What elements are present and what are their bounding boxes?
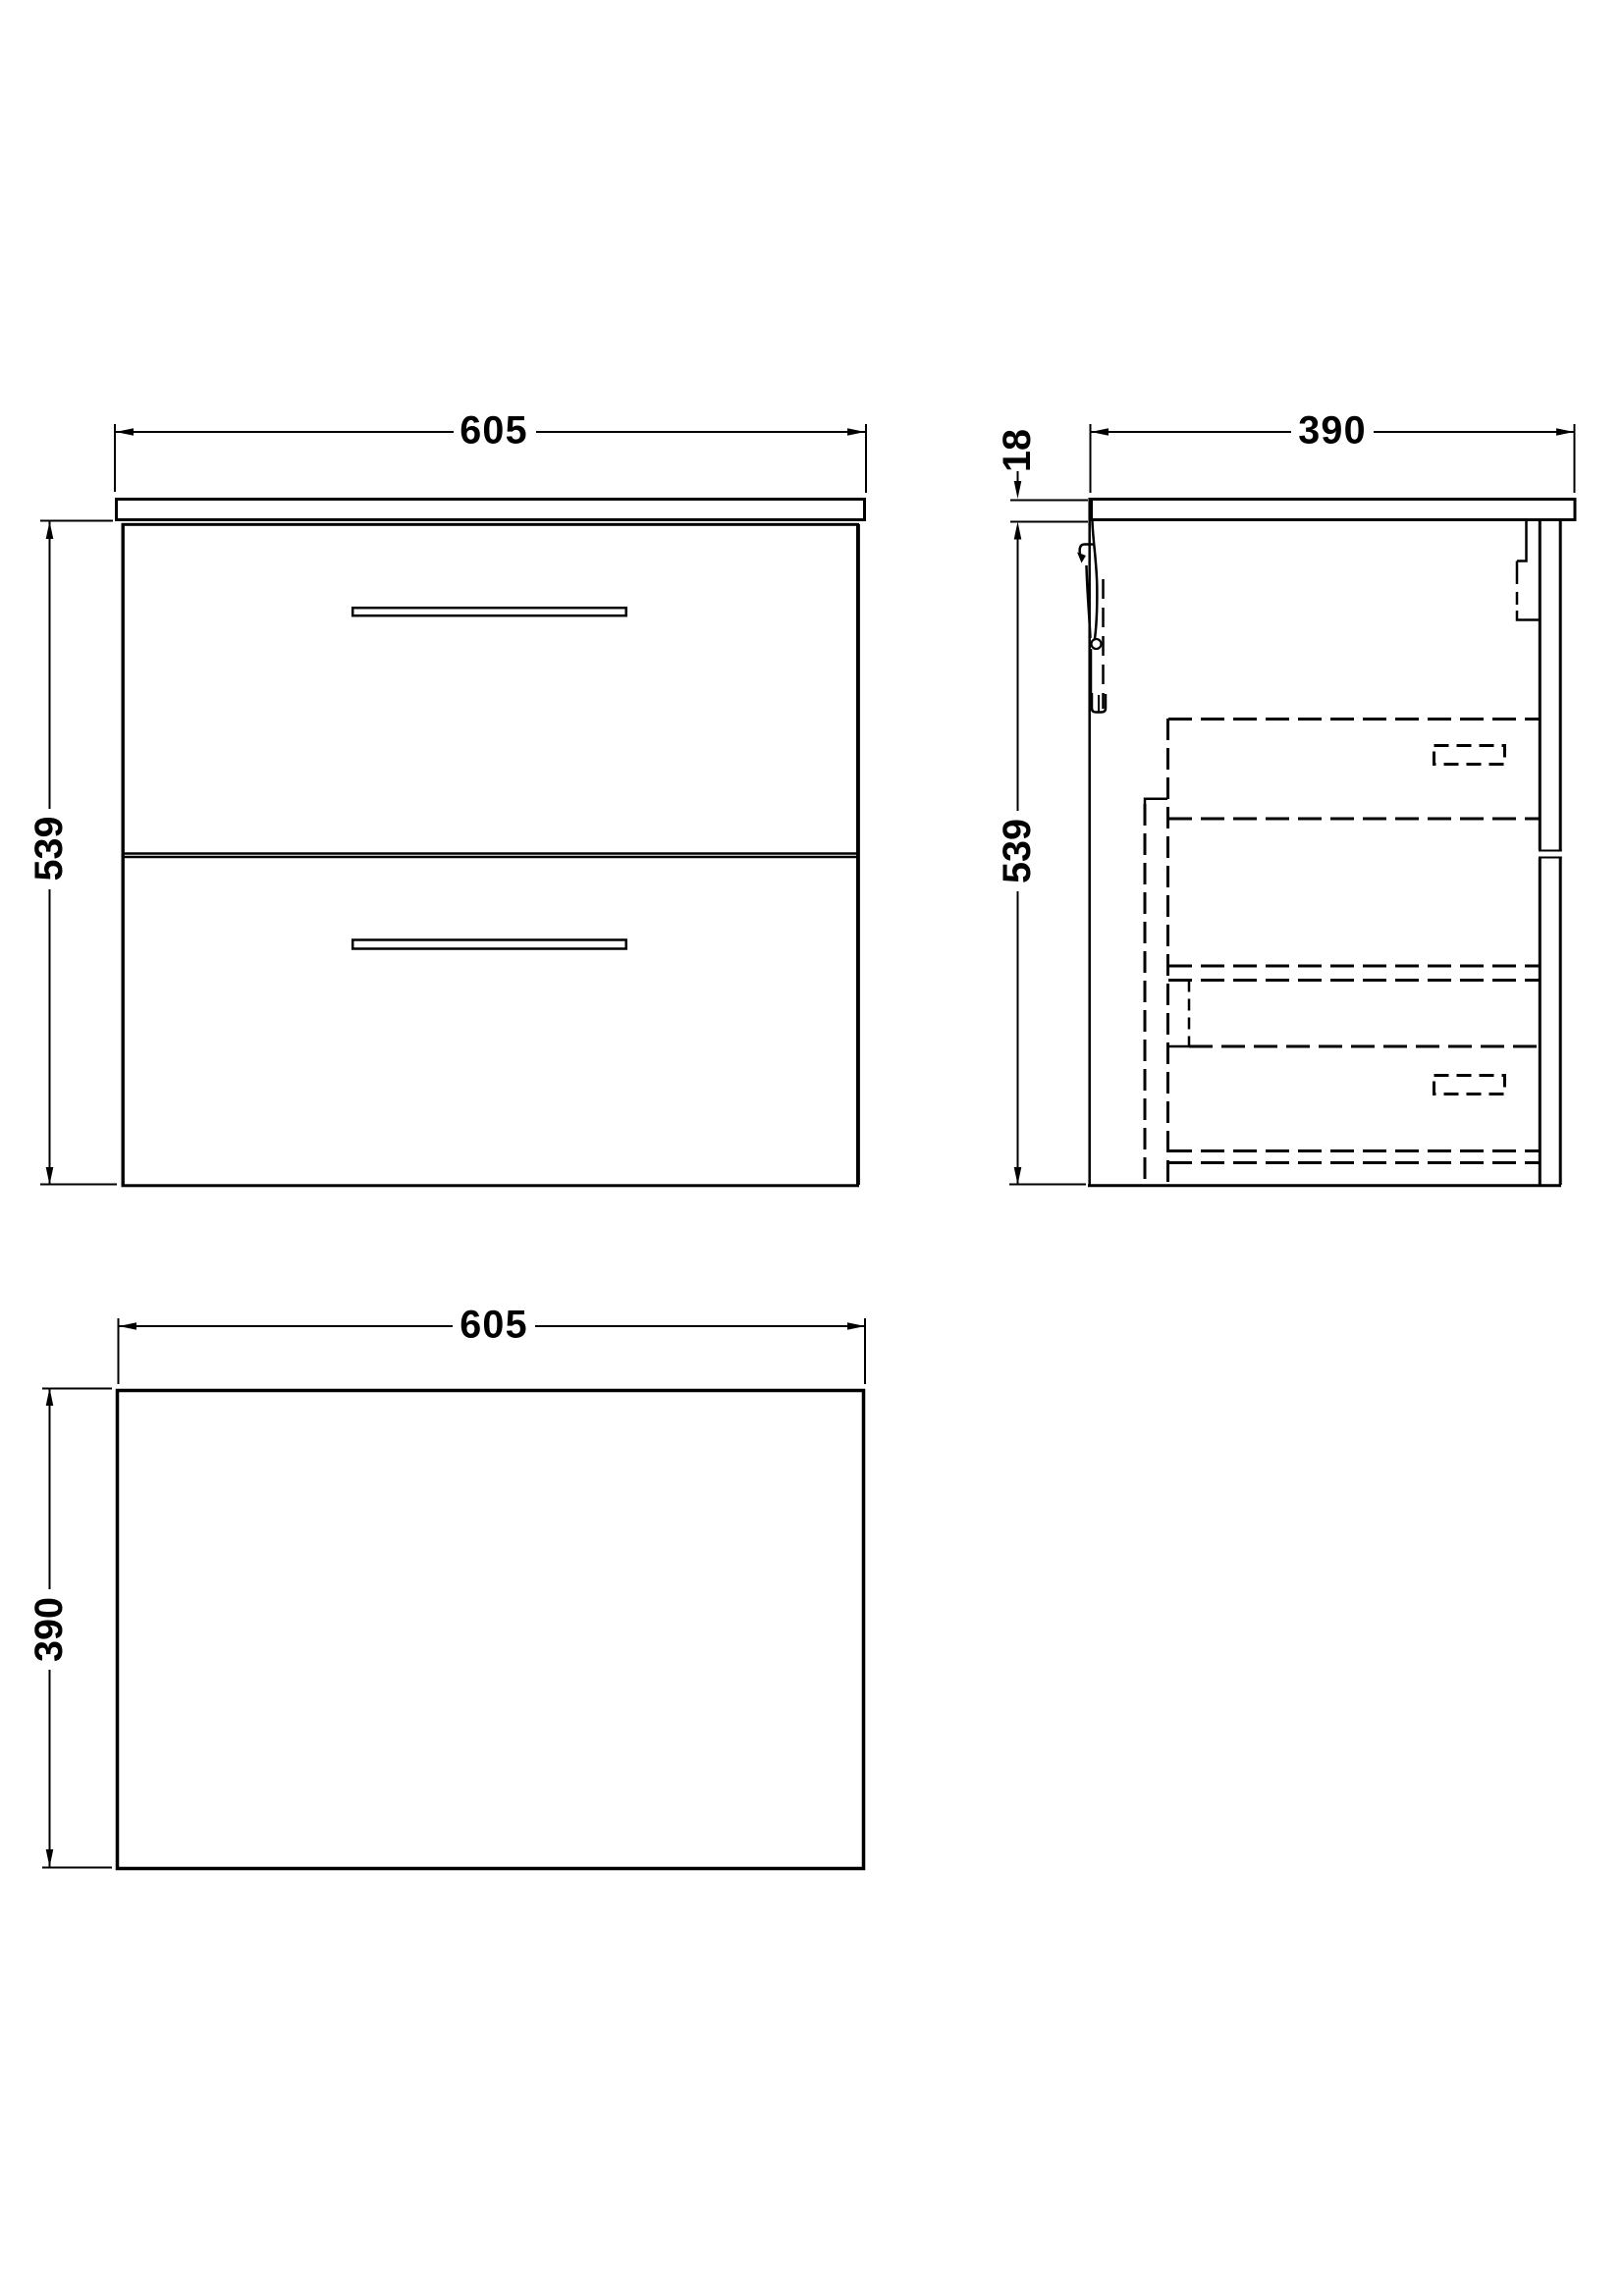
svg-text:539: 539 bbox=[27, 817, 71, 881]
svg-text:605: 605 bbox=[460, 1304, 528, 1347]
svg-text:539: 539 bbox=[996, 819, 1039, 883]
svg-text:605: 605 bbox=[460, 409, 528, 453]
svg-text:390: 390 bbox=[1298, 409, 1367, 453]
svg-text:390: 390 bbox=[27, 1597, 71, 1662]
svg-text:18: 18 bbox=[996, 429, 1039, 472]
